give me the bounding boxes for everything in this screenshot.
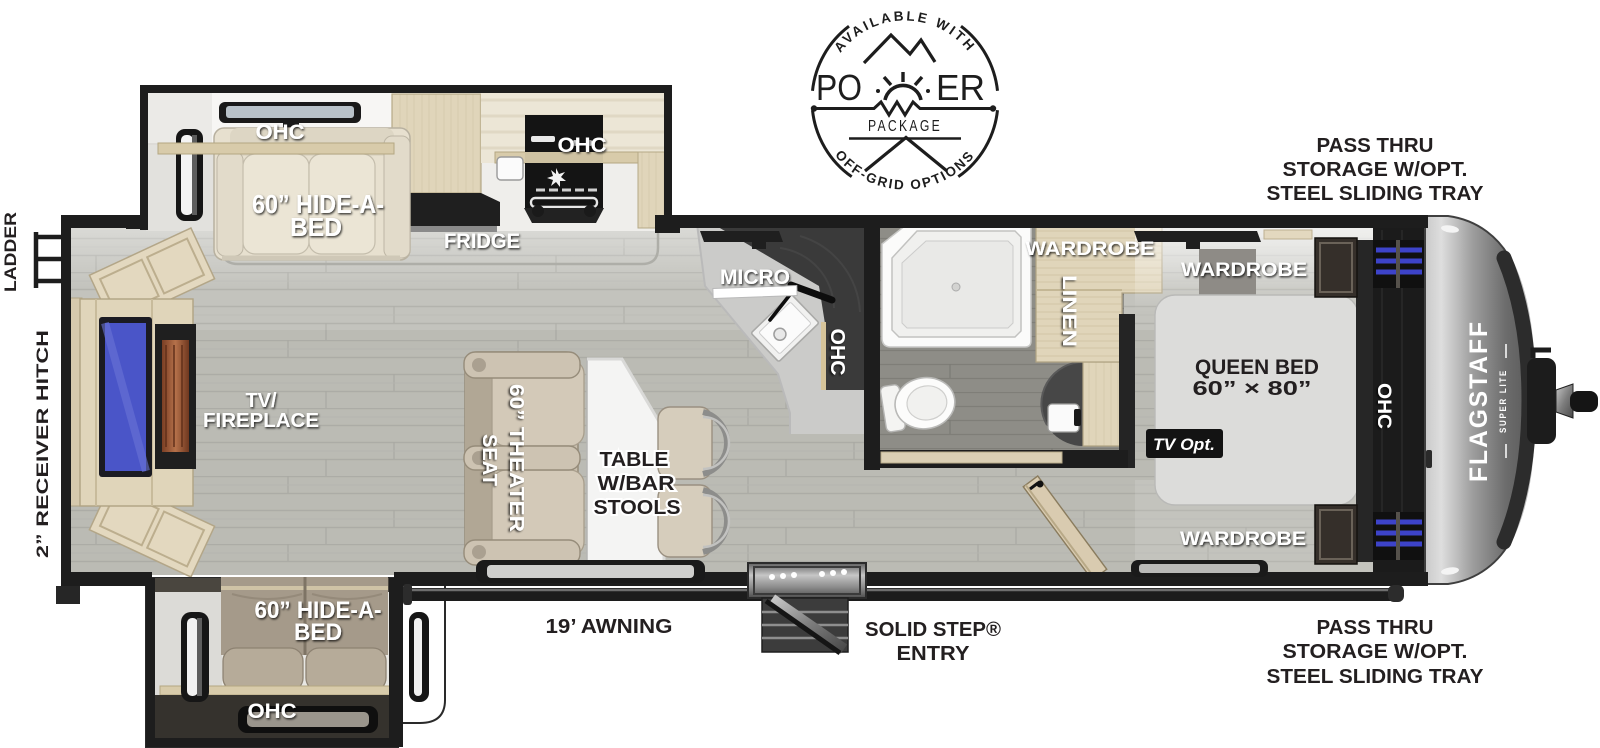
svg-text:BED: BED	[294, 619, 342, 646]
svg-text:FIREPLACE: FIREPLACE	[203, 410, 319, 432]
svg-text:W/BAR: W/BAR	[598, 473, 676, 495]
svg-text:PASS THRU: PASS THRU	[1317, 617, 1434, 639]
svg-text:OHC: OHC	[1373, 383, 1394, 429]
svg-text:FRIDGE: FRIDGE	[444, 230, 520, 253]
svg-text:TV Opt.: TV Opt.	[1153, 435, 1215, 454]
svg-text:SOLID STEP®: SOLID STEP®	[865, 619, 1001, 641]
svg-text:ENTRY: ENTRY	[897, 643, 971, 665]
svg-text:STOOLS: STOOLS	[594, 497, 681, 519]
svg-text:OHC: OHC	[248, 700, 297, 723]
svg-text:60” × 80”: 60” × 80”	[1193, 378, 1312, 400]
svg-text:FLAGSTAFF: FLAGSTAFF	[1465, 320, 1493, 482]
svg-text:MICRO: MICRO	[720, 266, 790, 289]
svg-text:STORAGE W/OPT.: STORAGE W/OPT.	[1283, 159, 1468, 181]
svg-text:PASS THRU: PASS THRU	[1317, 135, 1434, 157]
svg-text:19’ AWNING: 19’ AWNING	[546, 616, 673, 638]
svg-text:LADDER: LADDER	[1, 212, 20, 292]
svg-text:QUEEN BED: QUEEN BED	[1195, 356, 1319, 379]
svg-text:SEAT: SEAT	[478, 434, 500, 486]
svg-text:OHC: OHC	[256, 121, 305, 144]
svg-text:TV/: TV/	[245, 390, 277, 412]
svg-text:TABLE: TABLE	[600, 449, 669, 471]
svg-text:LINEN: LINEN	[1058, 275, 1079, 347]
svg-text:OHC: OHC	[826, 329, 848, 376]
svg-text:WARDROBE: WARDROBE	[1181, 259, 1307, 281]
svg-text:WARDROBE: WARDROBE	[1180, 528, 1306, 550]
svg-text:PACKAGE: PACKAGE	[868, 118, 942, 135]
svg-text:STORAGE W/OPT.: STORAGE W/OPT.	[1283, 641, 1468, 663]
svg-text:STEEL SLIDING TRAY: STEEL SLIDING TRAY	[1267, 183, 1485, 205]
svg-text:OHC: OHC	[558, 134, 607, 157]
svg-text:SUPER LITE: SUPER LITE	[1498, 369, 1508, 433]
svg-text:STEEL SLIDING TRAY: STEEL SLIDING TRAY	[1267, 666, 1485, 688]
svg-text:BED: BED	[290, 212, 342, 242]
svg-text:WARDROBE: WARDROBE	[1026, 238, 1155, 260]
svg-text:60” THEATER: 60” THEATER	[505, 384, 527, 533]
svg-text:ER: ER	[936, 67, 985, 108]
svg-text:2” RECEIVER HITCH: 2” RECEIVER HITCH	[33, 330, 52, 558]
svg-text:PO: PO	[816, 67, 862, 108]
